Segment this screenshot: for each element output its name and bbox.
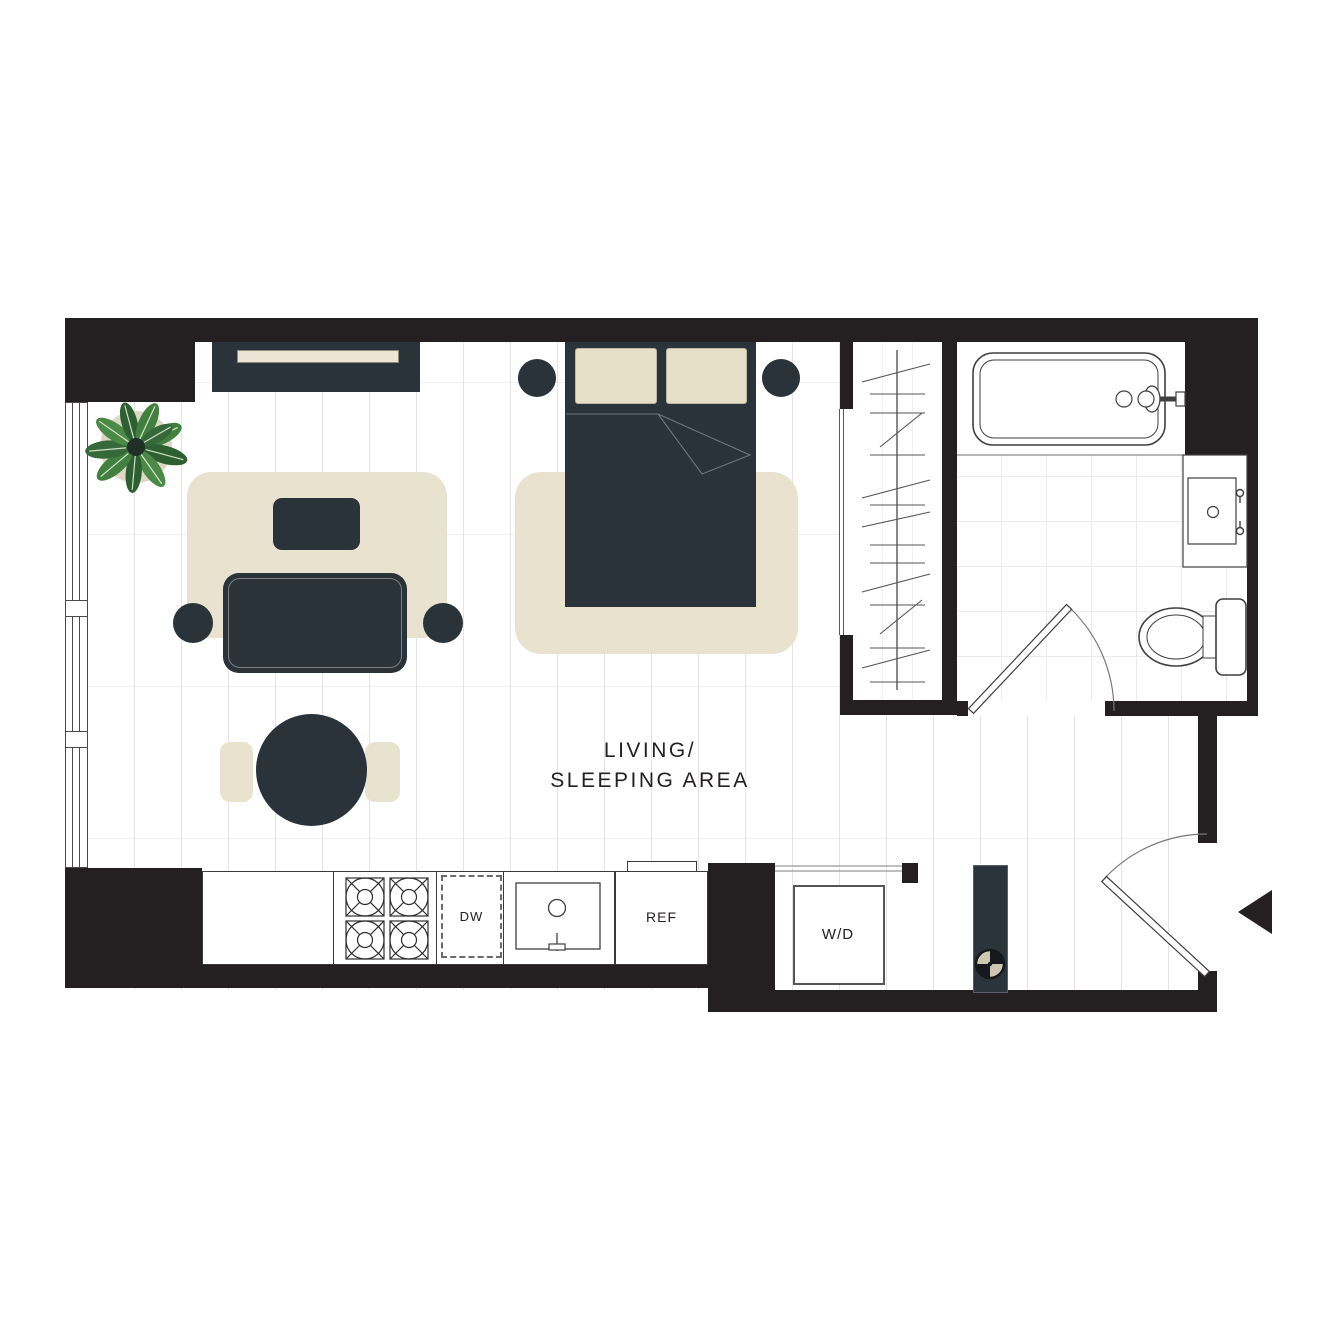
wall-closet-bottom [840,700,957,715]
tv-shelf [237,350,399,363]
pillow-right [666,348,747,404]
bathroom-floor [957,455,1247,701]
dining-chair-left [220,742,253,802]
area-label-line2: SLEEPING AREA [490,766,810,796]
tv-console [212,342,420,392]
wall-right-bathroom [1247,455,1258,701]
wall-closet-right [942,342,957,715]
dishwasher-label: DW [441,875,502,958]
closet-floor [853,342,942,700]
window-mullion-upper [66,600,87,617]
window-wall [65,402,88,868]
entry-marker [1238,890,1272,934]
living-sleeping-area-label: LIVING/ SLEEPING AREA [490,736,810,796]
coffee-table [273,498,360,550]
side-table-left [173,603,213,643]
wall-bottom-left-block [65,868,202,988]
side-table-right [423,603,463,643]
wall-entry-side [1198,716,1217,843]
wall-top-right-block [1185,318,1258,455]
washer-dryer-label: W/D [793,885,883,983]
bathroom-door-threshold [968,701,1105,716]
wall-top [65,318,1258,342]
area-label-line1: LIVING/ [490,736,810,766]
pillow-left [575,348,657,404]
wall-closet-left-lower [840,635,853,715]
wall-entry-door-stub [1198,971,1217,990]
sofa-cushion-line [228,578,402,668]
wall-top-left-block [65,318,195,402]
kitchen-sink-cabinet [503,871,615,965]
dining-chair-right [365,742,400,802]
floor-plan: LIVING/ SLEEPING AREA DW REF W/D [0,0,1333,1333]
bathroom-tub-zone-floor [957,342,1185,455]
nightstand-right [762,359,800,397]
entry-door-threshold [1198,843,1217,971]
wall-bathroom-door-jamb [957,701,968,716]
window-mullion-lower [66,731,87,748]
sliding-closet-door [839,409,853,635]
sofa [223,573,407,673]
wall-mid-block [708,863,775,1012]
wall-alcove-stub [902,863,918,883]
wall-kitchen-band [202,965,708,988]
wall-bathroom-bottom [1105,701,1258,716]
dining-table [256,714,367,826]
utility-column [973,865,1008,993]
nightstand-left [518,359,556,397]
wall-closet-left-upper [840,342,853,409]
refrigerator-label: REF [615,871,708,963]
stove [333,871,437,965]
wall-bottom-right-band [775,990,1217,1012]
